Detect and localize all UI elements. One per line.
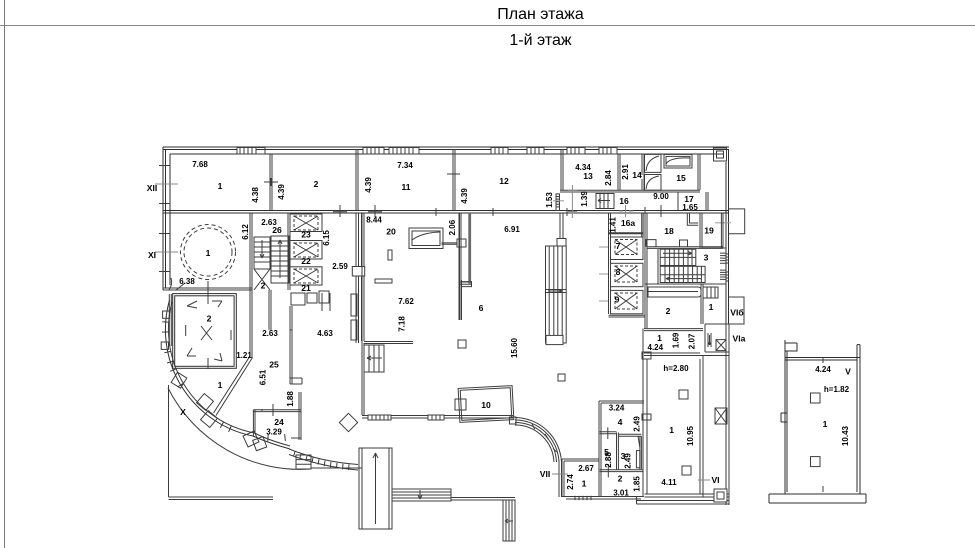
svg-text:1.39: 1.39 bbox=[580, 191, 589, 207]
svg-text:10.43: 10.43 bbox=[841, 425, 850, 446]
svg-text:4: 4 bbox=[618, 417, 623, 427]
svg-text:9.00: 9.00 bbox=[653, 192, 669, 201]
svg-text:21: 21 bbox=[301, 283, 311, 293]
svg-text:20: 20 bbox=[386, 227, 396, 237]
svg-text:2.67: 2.67 bbox=[578, 464, 594, 473]
svg-text:7.68: 7.68 bbox=[192, 160, 208, 169]
svg-text:VII: VII bbox=[540, 469, 551, 479]
svg-text:XI: XI bbox=[148, 250, 156, 260]
svg-text:4.24: 4.24 bbox=[815, 365, 831, 374]
svg-text:1: 1 bbox=[709, 302, 714, 312]
svg-text:1: 1 bbox=[582, 479, 587, 489]
svg-text:15: 15 bbox=[676, 173, 686, 183]
svg-text:14: 14 bbox=[632, 170, 642, 180]
svg-text:2.63: 2.63 bbox=[262, 329, 278, 338]
svg-text:1: 1 bbox=[218, 380, 223, 390]
svg-text:15.60: 15.60 bbox=[510, 337, 519, 358]
svg-text:2: 2 bbox=[314, 179, 319, 189]
svg-text:4.11: 4.11 bbox=[661, 478, 677, 487]
svg-text:6: 6 bbox=[479, 303, 484, 313]
svg-text:h=2.80: h=2.80 bbox=[663, 364, 689, 373]
svg-text:1.69: 1.69 bbox=[671, 332, 680, 348]
svg-text:1.85: 1.85 bbox=[633, 476, 642, 492]
svg-text:2: 2 bbox=[261, 281, 266, 291]
svg-text:6.12: 6.12 bbox=[241, 224, 250, 240]
svg-text:1: 1 bbox=[669, 425, 674, 435]
svg-text:V: V bbox=[845, 367, 851, 377]
svg-text:1.88: 1.88 bbox=[286, 391, 295, 407]
svg-text:23: 23 bbox=[301, 230, 311, 240]
svg-text:1: 1 bbox=[206, 248, 211, 258]
svg-text:6.38: 6.38 bbox=[179, 277, 195, 286]
svg-text:2.74: 2.74 bbox=[566, 474, 575, 490]
svg-text:2.59: 2.59 bbox=[332, 262, 348, 271]
svg-text:4.39: 4.39 bbox=[460, 188, 469, 204]
svg-text:1.65: 1.65 bbox=[682, 203, 698, 212]
svg-text:VI: VI bbox=[711, 475, 719, 485]
svg-text:19: 19 bbox=[704, 226, 714, 236]
svg-text:2.06: 2.06 bbox=[448, 219, 457, 235]
svg-text:8: 8 bbox=[616, 267, 621, 277]
svg-text:18: 18 bbox=[664, 226, 674, 236]
svg-text:3: 3 bbox=[704, 253, 709, 263]
svg-text:2: 2 bbox=[207, 314, 212, 324]
svg-text:X: X bbox=[180, 407, 186, 417]
svg-text:8.44: 8.44 bbox=[366, 216, 382, 225]
svg-text:2: 2 bbox=[666, 306, 671, 316]
svg-text:6.91: 6.91 bbox=[504, 225, 520, 234]
svg-text:4.63: 4.63 bbox=[317, 329, 333, 338]
svg-text:3.29: 3.29 bbox=[266, 428, 282, 437]
svg-text:2.88: 2.88 bbox=[604, 452, 613, 468]
svg-text:10.95: 10.95 bbox=[686, 425, 695, 446]
svg-text:9: 9 bbox=[615, 295, 620, 305]
svg-text:16: 16 bbox=[619, 196, 629, 206]
svg-text:16а: 16а bbox=[621, 218, 636, 228]
svg-text:VIа: VIа bbox=[733, 333, 746, 343]
svg-text:XII: XII bbox=[147, 183, 158, 193]
svg-text:2: 2 bbox=[618, 474, 623, 484]
svg-text:4.38: 4.38 bbox=[251, 187, 260, 203]
svg-text:3.01: 3.01 bbox=[613, 489, 629, 498]
svg-text:22: 22 bbox=[301, 256, 311, 266]
svg-text:2.49: 2.49 bbox=[624, 453, 633, 469]
svg-text:2.49: 2.49 bbox=[633, 416, 642, 432]
svg-text:3.24: 3.24 bbox=[609, 404, 625, 413]
svg-text:7.62: 7.62 bbox=[398, 297, 414, 306]
svg-text:24: 24 bbox=[274, 417, 284, 427]
svg-text:1.53: 1.53 bbox=[545, 192, 554, 208]
svg-text:25: 25 bbox=[269, 360, 279, 370]
svg-text:12: 12 bbox=[499, 176, 509, 186]
svg-text:VIб: VIб bbox=[730, 308, 743, 318]
svg-text:10: 10 bbox=[481, 400, 491, 410]
svg-text:2.84: 2.84 bbox=[604, 170, 613, 186]
svg-text:2.91: 2.91 bbox=[621, 164, 630, 180]
svg-text:2.07: 2.07 bbox=[687, 333, 696, 349]
svg-text:7: 7 bbox=[616, 241, 621, 251]
svg-text:11: 11 bbox=[401, 182, 410, 192]
svg-text:13: 13 bbox=[583, 171, 593, 181]
svg-text:1.41: 1.41 bbox=[609, 217, 618, 233]
svg-text:4.39: 4.39 bbox=[364, 177, 373, 193]
svg-text:7.18: 7.18 bbox=[398, 316, 407, 332]
svg-text:4.39: 4.39 bbox=[277, 184, 286, 200]
svg-text:6.51: 6.51 bbox=[259, 369, 268, 385]
svg-text:1: 1 bbox=[218, 181, 223, 191]
svg-text:26: 26 bbox=[272, 225, 282, 235]
svg-text:7.34: 7.34 bbox=[397, 161, 413, 170]
svg-text:4.24: 4.24 bbox=[648, 343, 664, 352]
svg-text:1: 1 bbox=[657, 333, 662, 343]
svg-text:h=1.82: h=1.82 bbox=[824, 385, 850, 394]
svg-text:6.15: 6.15 bbox=[322, 230, 331, 246]
svg-text:1.21: 1.21 bbox=[236, 351, 252, 360]
svg-text:1: 1 bbox=[823, 419, 828, 429]
